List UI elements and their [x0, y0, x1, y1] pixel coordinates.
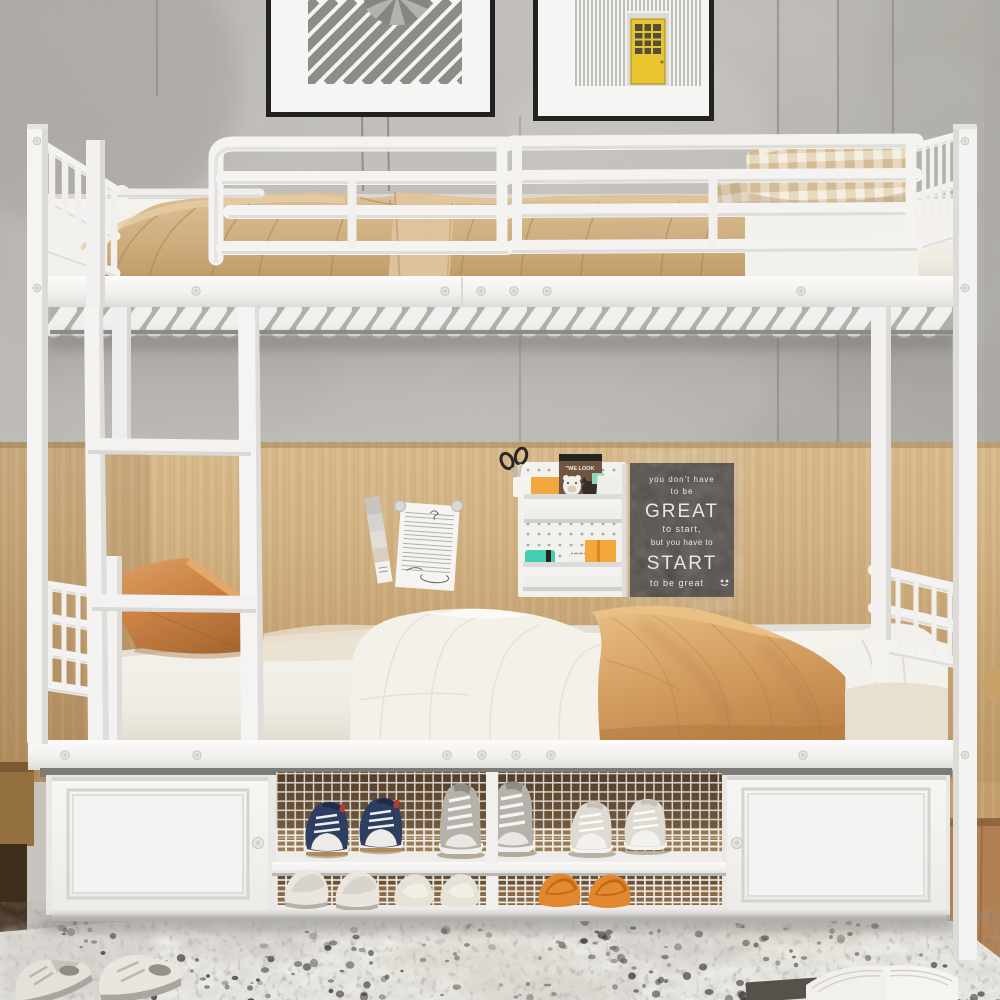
svg-text:GREAT: GREAT — [645, 501, 719, 522]
svg-text:START: START — [647, 553, 718, 574]
svg-text:to be great: to be great — [650, 578, 704, 588]
svg-text:to start,: to start, — [662, 524, 701, 534]
svg-text:you don't have: you don't have — [649, 475, 715, 484]
svg-text:but you have to: but you have to — [651, 538, 713, 547]
svg-text:to be: to be — [671, 487, 694, 496]
svg-text:"WE LOOK: "WE LOOK — [566, 466, 595, 472]
